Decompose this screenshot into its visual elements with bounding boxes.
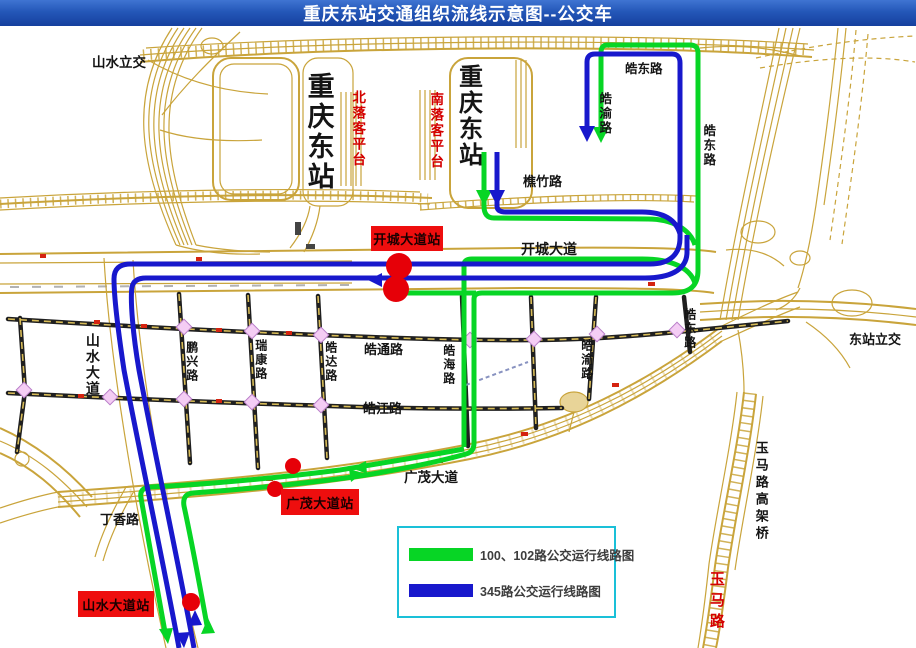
label-south-dropoff-platform: 南落客平台 — [428, 92, 442, 170]
shanshui-interchange-roads — [144, 28, 270, 254]
legend-swatch-green — [409, 548, 473, 561]
station-badge-shanshui: 山水大道站 — [78, 591, 154, 617]
label-haoyu-road-mid: 皓渝路 — [580, 339, 593, 381]
label-chongqing-east-station-right: 重庆东站 — [455, 64, 480, 168]
bus-stop-guangmao-north — [285, 458, 301, 474]
bus-stop-dots — [182, 253, 412, 611]
station-badge-kaicheng: 开城大道站 — [371, 226, 443, 251]
label-haodong-road-top: 皓东路 — [625, 63, 663, 76]
label-yuma-viaduct: 玉马路高架桥 — [754, 441, 768, 543]
label-haodong-road-topright: 皓东路 — [701, 124, 714, 168]
label-haodong-road-mid: 皓东路 — [683, 308, 696, 350]
label-haohai-road: 皓海路 — [442, 344, 455, 386]
label-guangmao-avenue: 广茂大道 — [404, 471, 458, 485]
label-dingxiang-road: 丁香路 — [100, 513, 139, 527]
label-chongqing-east-station-left: 重庆东站 — [304, 72, 333, 192]
label-pengxing-road: 鹏兴路 — [185, 341, 198, 383]
traffic-map-page: 重庆东站交通组织流线示意图--公交车 — [0, 0, 916, 648]
kaicheng-avenue-road — [0, 248, 716, 293]
label-north-dropoff-platform: 北落客平台 — [350, 90, 364, 168]
label-yuma-road: 玉马路 — [708, 571, 724, 634]
bus-stop-kaicheng-north — [386, 253, 412, 279]
label-haoyu-road-top: 皓渝路 — [597, 92, 610, 136]
label-ruikang-road: 瑞康路 — [254, 339, 267, 381]
legend-label-blue: 345路公交运行线路图 — [480, 581, 601, 600]
label-haoda-road: 皓达路 — [324, 341, 337, 383]
bus-stop-shanshui — [182, 593, 200, 611]
label-dongzhan-interchange: 东站立交 — [849, 333, 901, 347]
qiaozhu-road-line — [418, 195, 696, 210]
label-shanshui-avenue: 山水大道 — [85, 333, 100, 397]
bus-stop-kaicheng-south — [383, 276, 409, 302]
legend-row-green: 100、102路公交运行线路图 — [409, 545, 604, 564]
bottom-left-roads — [0, 428, 134, 561]
label-kaicheng-avenue: 开城大道 — [521, 242, 577, 257]
legend-swatch-blue — [409, 584, 473, 597]
legend-label-green: 100、102路公交运行线路图 — [480, 545, 634, 564]
legend-row-blue: 345路公交运行线路图 — [409, 581, 604, 600]
label-haojiang-road: 皓江路 — [363, 402, 402, 416]
label-haotong-road: 皓通路 — [364, 343, 403, 357]
legend-box: 100、102路公交运行线路图 345路公交运行线路图 — [397, 526, 616, 618]
station-badge-guangmao: 广茂大道站 — [281, 489, 359, 515]
label-qiaozhu-road: 樵竹路 — [523, 175, 562, 189]
label-shanshui-interchange: 山水立交 — [92, 56, 146, 70]
